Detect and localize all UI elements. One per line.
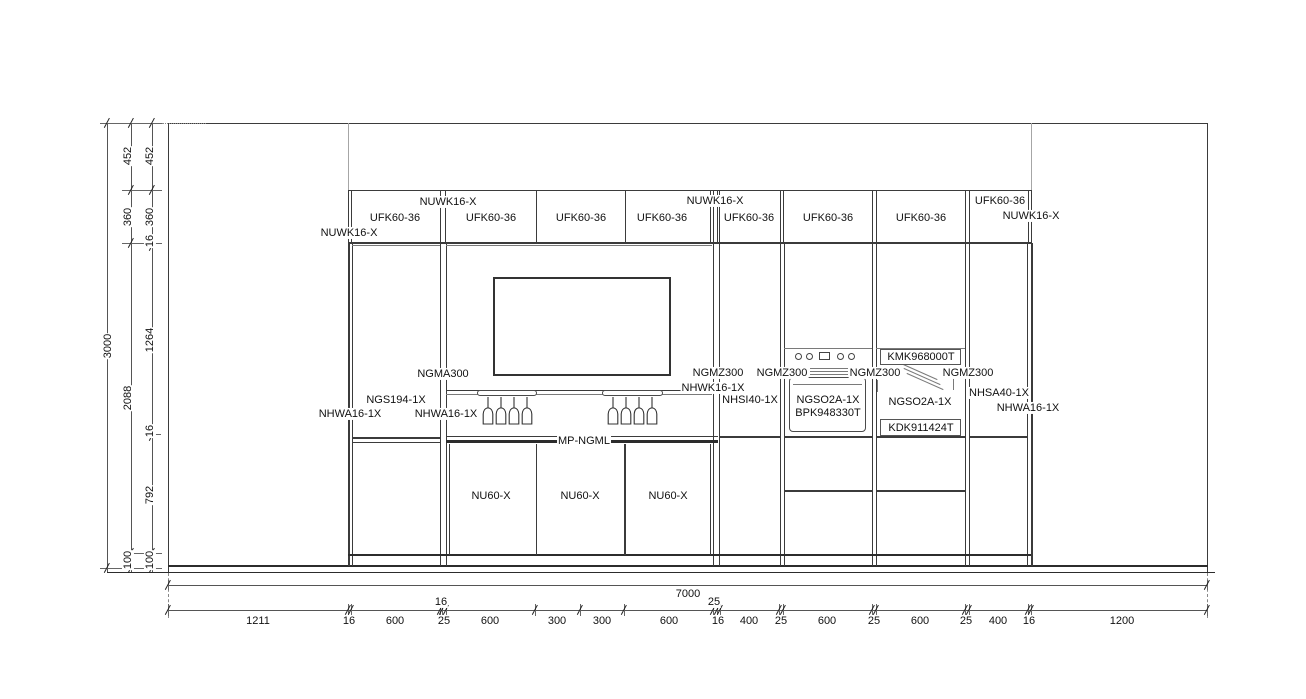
niche-top-line — [446, 245, 712, 246]
counter-line — [876, 436, 965, 438]
dim-label: 16 — [144, 234, 156, 248]
wall-cabinet-label: UFK60-36 — [802, 212, 854, 224]
cabinet-line — [876, 190, 877, 243]
oven-handle-line — [793, 384, 862, 385]
cabinet-line — [969, 243, 970, 566]
cabinet-line — [965, 190, 966, 243]
cabinet-line — [872, 243, 873, 566]
cabinet-line — [352, 442, 440, 443]
floor-line — [168, 565, 1208, 567]
dim-label: 360 — [144, 207, 156, 227]
wall-left-line — [168, 123, 169, 572]
dim-label: 300 — [592, 615, 612, 627]
dim-label: 300 — [547, 615, 567, 627]
dim-label: 25 — [774, 615, 788, 627]
appliance-niche-line — [784, 348, 873, 349]
wall-cabinet-label: UFK60-36 — [465, 212, 517, 224]
base-cabinet-label: NU60-X — [470, 490, 511, 502]
shelf-hatch-diagonal — [906, 373, 943, 390]
tall-unit-label: NGSO2A-1X — [796, 394, 861, 406]
dim-label: 452 — [122, 146, 134, 166]
wall-right-line — [1207, 123, 1208, 572]
dim-label: 16 — [711, 615, 725, 627]
side-panel-label: NHWA16-1X — [414, 408, 479, 420]
back-panel-label: NGMZ300 — [849, 367, 902, 379]
dim-label: 16 — [1022, 615, 1036, 627]
cabinet-line — [783, 190, 784, 243]
tall-unit-label: NGSO2A-1X — [888, 396, 953, 408]
wall-cabinet-label: UFK60-36 — [723, 212, 775, 224]
leader-line — [877, 380, 878, 392]
ceiling-line — [168, 123, 1208, 124]
dim-label: 16 — [144, 424, 156, 438]
back-panel-label: NGMA300 — [416, 368, 469, 380]
soffit-drop-line — [348, 123, 349, 190]
soffit-drop-line — [1031, 123, 1032, 190]
wall-filler-label: NUWK16-X — [686, 195, 745, 207]
wine-glass-rack-icon — [606, 397, 662, 425]
wall-filler-label: NUWK16-X — [1002, 210, 1061, 222]
dim-label: 1211 — [245, 615, 271, 627]
ext-line — [122, 190, 162, 191]
cabinet-line — [876, 243, 877, 566]
floor-base-line — [107, 572, 1215, 574]
dim-label: 452 — [144, 146, 156, 166]
cabinet-line — [780, 190, 781, 243]
dim-label: 2088 — [122, 385, 134, 411]
dim-label: 7000 — [675, 588, 701, 600]
appliance-label: BPK948330T — [794, 407, 861, 419]
side-panel-line — [446, 243, 447, 566]
dim-line — [168, 585, 1208, 586]
shelf-hatch — [810, 374, 848, 375]
wall-cabinet-label: UFK60-36 — [895, 212, 947, 224]
side-panel-line — [713, 243, 714, 566]
counter-line — [969, 436, 1027, 438]
dim-label: 400 — [739, 615, 759, 627]
leader-line — [953, 378, 954, 390]
base-cabinet-line — [710, 444, 711, 555]
cabinet-line — [536, 190, 538, 243]
side-panel-line — [348, 243, 350, 566]
glass-rack-rail — [477, 390, 537, 396]
filler-label: NHWK16-1X — [681, 382, 746, 394]
back-panel-label: NGMZ300 — [942, 367, 995, 379]
worktop-label: MP-NGML — [557, 435, 611, 447]
wine-glass-rack-icon — [481, 397, 537, 425]
dim-line — [168, 610, 1208, 611]
cabinet-line — [784, 243, 785, 566]
cabinet-line — [780, 243, 781, 566]
base-cabinet-line — [449, 444, 450, 555]
counter-line — [719, 436, 780, 438]
back-panel-label: NGMZ300 — [756, 367, 809, 379]
cabinet-line — [625, 190, 627, 243]
drawer-line — [876, 490, 965, 492]
ext-line — [162, 123, 206, 124]
wall-cabinet-label: UFK60-36 — [974, 195, 1026, 207]
cooktop-knob-icon — [795, 353, 802, 360]
dim-label: 25 — [959, 615, 973, 627]
cabinet-line — [352, 437, 440, 439]
dim-label: 400 — [988, 615, 1008, 627]
tall-unit-label: NHSA40-1X — [968, 387, 1030, 399]
dim-label: 360 — [122, 207, 134, 227]
cabinet-line — [965, 243, 966, 566]
glass-rack-rail — [602, 390, 663, 396]
cabinet-line — [872, 190, 873, 243]
counter-line — [784, 436, 873, 438]
back-panel-label: NGMZ300 — [692, 367, 745, 379]
side-panel-label: NHWA16-1X — [318, 408, 383, 420]
cooktop-display-icon — [819, 352, 830, 360]
tv-panel — [493, 277, 671, 376]
tall-unit-label: NHSI40-1X — [721, 394, 779, 406]
base-cabinet-label: NU60-X — [559, 490, 600, 502]
dim-label: 792 — [144, 485, 156, 505]
side-panel-line — [719, 243, 720, 566]
side-panel-line — [352, 243, 353, 566]
dim-label: 600 — [910, 615, 930, 627]
shelf-hatch — [810, 371, 848, 372]
wall-cabinet-label: UFK60-36 — [369, 212, 421, 224]
shelf-hatch — [810, 368, 848, 369]
dim-label: 600 — [480, 615, 500, 627]
dim-label: 1264 — [144, 327, 156, 353]
dim-label: 25 — [867, 615, 881, 627]
side-panel-label: NHWA16-1X — [996, 402, 1061, 414]
base-cabinet-line — [536, 444, 538, 555]
dim-label: 25 — [437, 615, 451, 627]
dim-label: 100 — [122, 550, 134, 570]
cooktop-knob-icon — [837, 353, 844, 360]
shelf-hatch-diagonal — [903, 368, 940, 385]
dim-label: 16 — [342, 615, 356, 627]
cabinet-bottom-line — [348, 554, 1031, 556]
dim-label: 25 — [707, 596, 721, 608]
dim-label: 600 — [385, 615, 405, 627]
side-panel-line — [440, 243, 441, 566]
appliance-label: KMK968000T — [886, 351, 955, 363]
wall-row-bottom-line — [348, 242, 1031, 244]
cooktop-knob-icon — [806, 353, 813, 360]
wall-filler-label: NUWK16-X — [419, 196, 478, 208]
dim-label: 1200 — [1109, 615, 1135, 627]
drawer-line — [784, 490, 873, 492]
cabinet-line — [352, 245, 440, 246]
wall-cabinet-label: UFK60-36 — [555, 212, 607, 224]
base-cabinet-label: NU60-X — [647, 490, 688, 502]
cooktop-knob-icon — [848, 353, 855, 360]
tall-unit-label: NGS194-1X — [365, 394, 426, 406]
kitchen-elevation-drawing: NUWK16-X UFK60-36 NUWK16-X UFK60-36 UFK6… — [0, 0, 1306, 699]
base-cabinet-line — [624, 444, 626, 555]
dim-label: 3000 — [102, 333, 114, 359]
appliance-label: KDK911424T — [887, 422, 954, 434]
cabinet-line — [969, 190, 970, 243]
wall-cabinet-label: UFK60-36 — [636, 212, 688, 224]
dim-label: 16 — [434, 596, 448, 608]
dim-label: 600 — [817, 615, 837, 627]
wall-row-top-line — [348, 190, 1031, 191]
dim-label: 600 — [659, 615, 679, 627]
wall-filler-label: NUWK16-X — [320, 227, 379, 239]
dim-label: 100 — [144, 550, 156, 570]
